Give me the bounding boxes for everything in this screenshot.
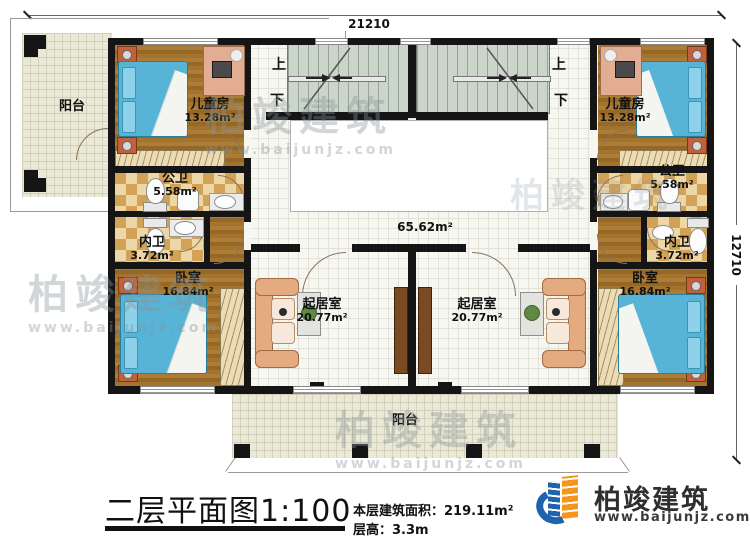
room-name: 内卫 <box>122 236 182 250</box>
sofa-arm <box>255 278 299 296</box>
wall-living-top <box>251 244 300 252</box>
room-area: 3.72m² <box>122 250 182 262</box>
room-name: 卧室 <box>155 272 221 286</box>
wall-living-top <box>352 244 466 252</box>
window <box>640 38 705 45</box>
room-label-balcony-top: 阳台 <box>44 100 100 114</box>
room-label-kids-left: 儿童房 13.28m² <box>175 98 245 124</box>
room-name: 起居室 <box>290 298 354 312</box>
eave-line <box>10 18 345 19</box>
staircase-left <box>287 44 410 114</box>
room-label-bedroom-right: 卧室 16.84m² <box>612 272 678 298</box>
stair-up-label-right: 上 <box>552 54 566 74</box>
room-label-bedroom-left: 卧室 16.84m² <box>155 272 221 298</box>
balcony-pillar <box>584 444 600 458</box>
room-label-living-right: 起居室 20.77m² <box>445 298 509 324</box>
door-opening <box>590 130 597 158</box>
nightstand <box>687 137 707 154</box>
window <box>620 386 695 394</box>
floor-area-label: 本层建筑面积： <box>353 504 444 519</box>
door-opening <box>244 130 251 158</box>
room-label-public-bath-right: 公卫 5.58m² <box>642 165 702 191</box>
room-label-living-left: 起居室 20.77m² <box>290 298 354 324</box>
eave-line <box>10 211 109 212</box>
sofa-cushion <box>271 322 295 344</box>
window <box>140 386 215 394</box>
floor-height-value: 3.3m <box>392 523 429 538</box>
sink-icon <box>603 195 623 209</box>
floorplan-page: 21210 12710 阳台 <box>0 0 750 542</box>
room-name: 儿童房 <box>175 98 245 112</box>
stair-break-line <box>288 45 409 113</box>
pillar-notch <box>38 49 46 57</box>
dimension-width-label: 21210 <box>329 17 409 31</box>
stair-up-label-left: 上 <box>272 54 286 74</box>
title-underline <box>105 526 345 531</box>
sofa-cushion <box>546 322 570 344</box>
tv-cabinet <box>418 287 432 374</box>
watermark-url: www.baijunjz.com <box>335 456 526 472</box>
logo-tower-blue <box>548 481 560 516</box>
room-area: 16.84m² <box>155 286 221 298</box>
room-name: 阳台 <box>44 100 100 114</box>
sliding-door <box>293 386 361 394</box>
logo-tower-orange <box>562 475 578 519</box>
dimension-height-label: 12710 <box>729 225 743 285</box>
balcony-pillar <box>352 444 368 458</box>
nightstand <box>117 137 137 154</box>
room-area: 13.28m² <box>590 112 660 124</box>
staircase-right <box>416 44 550 114</box>
eave-line <box>228 472 628 473</box>
drawing-scale: 1:100 <box>260 494 351 529</box>
nightstand <box>118 277 138 294</box>
room-area: 3.72m² <box>647 250 707 262</box>
wall-corridor-left <box>204 217 210 262</box>
room-name: 儿童房 <box>590 98 660 112</box>
room-name: 阳台 <box>377 414 433 428</box>
window <box>143 38 218 45</box>
brand-url: www.baijunjz.com <box>594 510 750 525</box>
sofa-arm <box>542 278 586 296</box>
floor-height-label: 层高： <box>353 523 392 538</box>
room-name: 卧室 <box>612 272 678 286</box>
door-opening <box>244 222 251 250</box>
room-label-balcony-bottom: 阳台 <box>377 414 433 428</box>
plant-icon <box>524 305 540 321</box>
room-label-kids-right: 儿童房 13.28m² <box>590 98 660 124</box>
void-open-to-below <box>290 120 548 212</box>
washing-machine-icon <box>628 189 650 211</box>
wall-living-top <box>518 244 590 252</box>
tv-cabinet <box>394 287 408 374</box>
room-name: 起居室 <box>445 298 509 312</box>
stair-down-label-right: 下 <box>554 90 568 110</box>
sofa-arm <box>542 350 586 368</box>
stair-down-label-left: 下 <box>270 90 284 110</box>
window <box>315 38 348 45</box>
room-area: 16.84m² <box>612 286 678 298</box>
drawing-title-text: 二层平面图 <box>105 494 260 529</box>
toilet-tank <box>687 218 709 228</box>
pillar-notch <box>38 170 46 178</box>
room-area: 5.58m² <box>145 186 205 198</box>
room-label-private-bath-right: 内卫 3.72m² <box>647 236 707 262</box>
sliding-door <box>461 386 529 394</box>
bed <box>120 294 207 374</box>
bed <box>618 294 705 374</box>
wall-right <box>707 38 714 394</box>
wall-wing-right <box>590 44 597 386</box>
wall-bath-bottom-left <box>114 262 244 269</box>
eave-line <box>619 457 630 471</box>
person-figure <box>279 308 287 316</box>
desk <box>600 46 642 96</box>
stair-break-line <box>417 45 549 113</box>
wall-bath-bottom-right <box>597 262 707 269</box>
toilet-tank <box>143 218 167 228</box>
window <box>400 38 431 45</box>
floor-area-info: 本层建筑面积：219.11m² <box>353 500 513 519</box>
brand-logo-icon <box>536 474 590 526</box>
room-area: 20.77m² <box>445 312 509 324</box>
wall-center-bottom <box>408 244 416 386</box>
nightstand <box>686 277 706 294</box>
room-area: 65.62m² <box>395 221 455 234</box>
window <box>557 38 590 45</box>
room-label-private-bath-left: 内卫 3.72m² <box>122 236 182 262</box>
wall-wing-left <box>244 44 251 386</box>
room-name: 公卫 <box>642 165 702 179</box>
eave-line <box>225 457 236 471</box>
room-label-public-bath-left: 公卫 5.58m² <box>145 172 205 198</box>
floor-area-value: 219.11m² <box>444 504 513 519</box>
room-name: 内卫 <box>647 236 707 250</box>
sofa-arm <box>255 350 299 368</box>
room-area: 5.58m² <box>642 179 702 191</box>
wall-stair-bottom-left <box>266 112 408 120</box>
room-area: 13.28m² <box>175 112 245 124</box>
floor-height-info: 层高：3.3m <box>353 519 429 538</box>
person-figure <box>552 308 560 316</box>
sink-icon <box>214 195 236 209</box>
room-name: 公卫 <box>145 172 205 186</box>
hall-area-label: 65.62m² <box>395 221 455 234</box>
door-opening <box>590 222 597 250</box>
room-area: 20.77m² <box>290 312 354 324</box>
dimension-line-top <box>27 15 722 16</box>
balcony-pillar <box>466 444 482 458</box>
wall-stair-bottom-right <box>416 112 548 120</box>
desk <box>203 46 245 96</box>
drawing-title: 二层平面图1:100 <box>105 486 351 530</box>
balcony-pillar <box>234 444 250 458</box>
wall-center-top <box>408 44 416 118</box>
eave-line <box>10 18 11 212</box>
sink-icon <box>174 221 196 235</box>
